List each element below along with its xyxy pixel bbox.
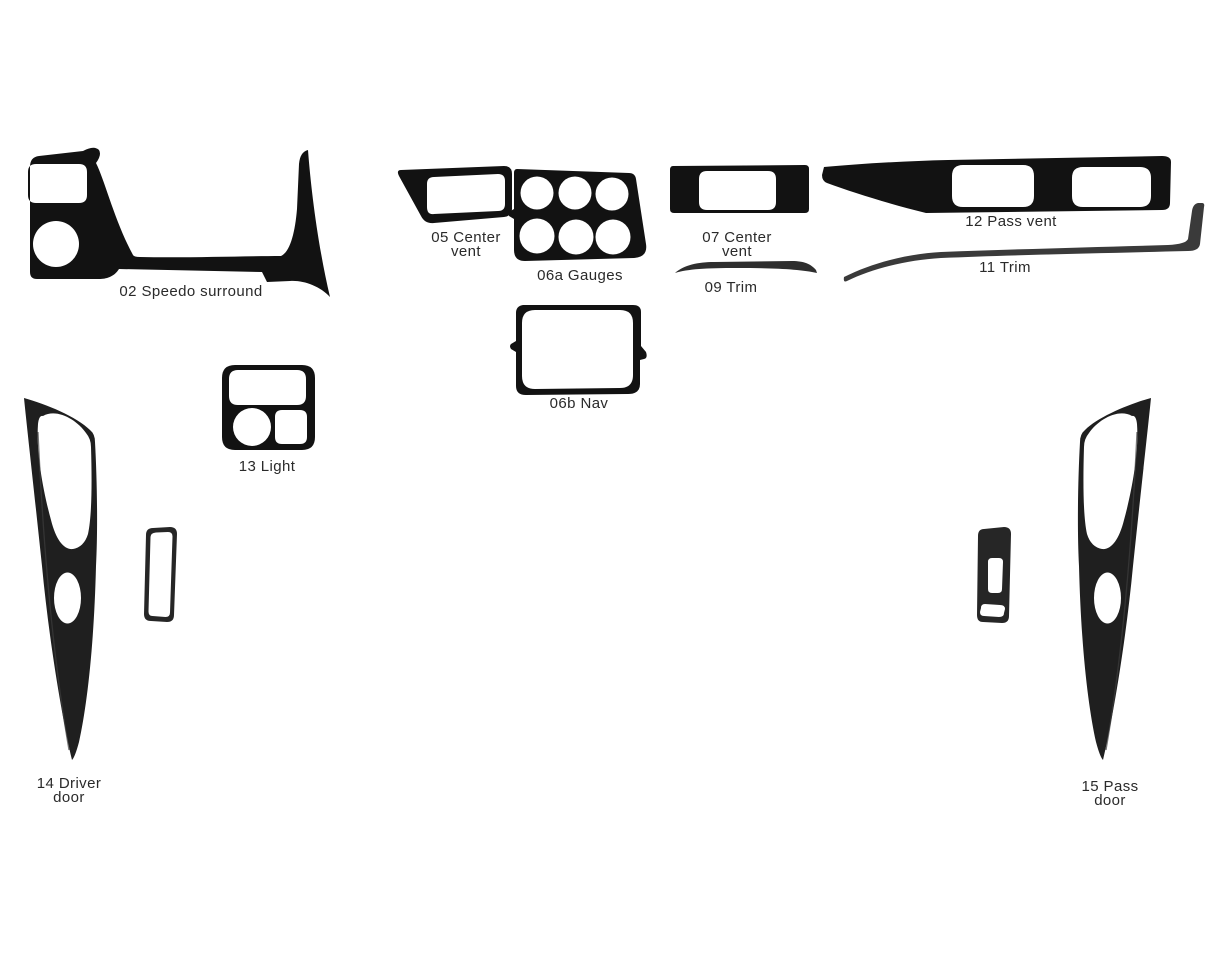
label-14-driver-door: 14 Driver door	[37, 777, 101, 804]
label-text: 02 Speedo surround	[119, 285, 262, 299]
nav-silhouette	[510, 305, 647, 395]
driver-door-silhouette	[24, 398, 97, 760]
label-text: 13 Light	[239, 460, 296, 474]
label-text: vent	[431, 245, 500, 259]
pass-vent-silhouette	[822, 156, 1171, 213]
label-15-pass-door: 15 Pass door	[1082, 780, 1139, 807]
driver-door-accessory-ring-shape	[144, 527, 177, 622]
accessory-panel-silhouette	[977, 527, 1011, 623]
label-09-trim: 09 Trim	[705, 281, 758, 295]
label-text: 09 Trim	[705, 281, 758, 295]
label-06b-nav: 06b Nav	[550, 397, 609, 411]
part-12-pass-vent-shape	[822, 156, 1171, 213]
label-text: 11 Trim	[979, 261, 1031, 275]
label-text: door	[1082, 794, 1139, 808]
trim-kit-parts-diagram: 02 Speedo surround 05 Center vent 06a Ga…	[0, 0, 1228, 955]
part-13-light-shape	[222, 365, 315, 450]
center-vent-05-silhouette	[398, 166, 512, 223]
label-text: 06a Gauges	[537, 269, 623, 283]
label-text: vent	[702, 245, 771, 259]
label-text: 12 Pass vent	[965, 215, 1057, 229]
gauges-silhouette	[509, 169, 646, 261]
trim-09-silhouette	[675, 261, 817, 273]
part-05-center-vent-shape	[398, 166, 512, 223]
label-06a-gauges: 06a Gauges	[537, 269, 623, 283]
part-02-speedo-surround-shape	[28, 148, 330, 297]
part-07-center-vent-shape	[670, 165, 809, 213]
speedo-surround-silhouette	[28, 148, 330, 297]
label-13-light: 13 Light	[239, 460, 296, 474]
label-11-trim: 11 Trim	[979, 261, 1031, 275]
accessory-ring-silhouette	[144, 527, 177, 622]
parts-shapes-canvas	[0, 0, 1228, 955]
part-06a-gauges-shape	[509, 169, 646, 261]
part-09-trim-shape	[675, 261, 817, 273]
center-vent-07-silhouette	[670, 165, 809, 213]
label-02-speedo-surround: 02 Speedo surround	[119, 285, 262, 299]
label-text: door	[37, 791, 101, 805]
light-silhouette	[222, 365, 315, 450]
label-05-center-vent: 05 Center vent	[431, 231, 500, 258]
part-14-driver-door-shape	[24, 398, 97, 760]
pass-door-accessory-panel-shape	[977, 527, 1011, 623]
label-text: 06b Nav	[550, 397, 609, 411]
part-15-pass-door-shape	[1078, 398, 1151, 760]
pass-door-silhouette	[1078, 398, 1151, 760]
label-12-pass-vent: 12 Pass vent	[965, 215, 1057, 229]
label-07-center-vent: 07 Center vent	[702, 231, 771, 258]
part-06b-nav-shape	[510, 305, 647, 395]
